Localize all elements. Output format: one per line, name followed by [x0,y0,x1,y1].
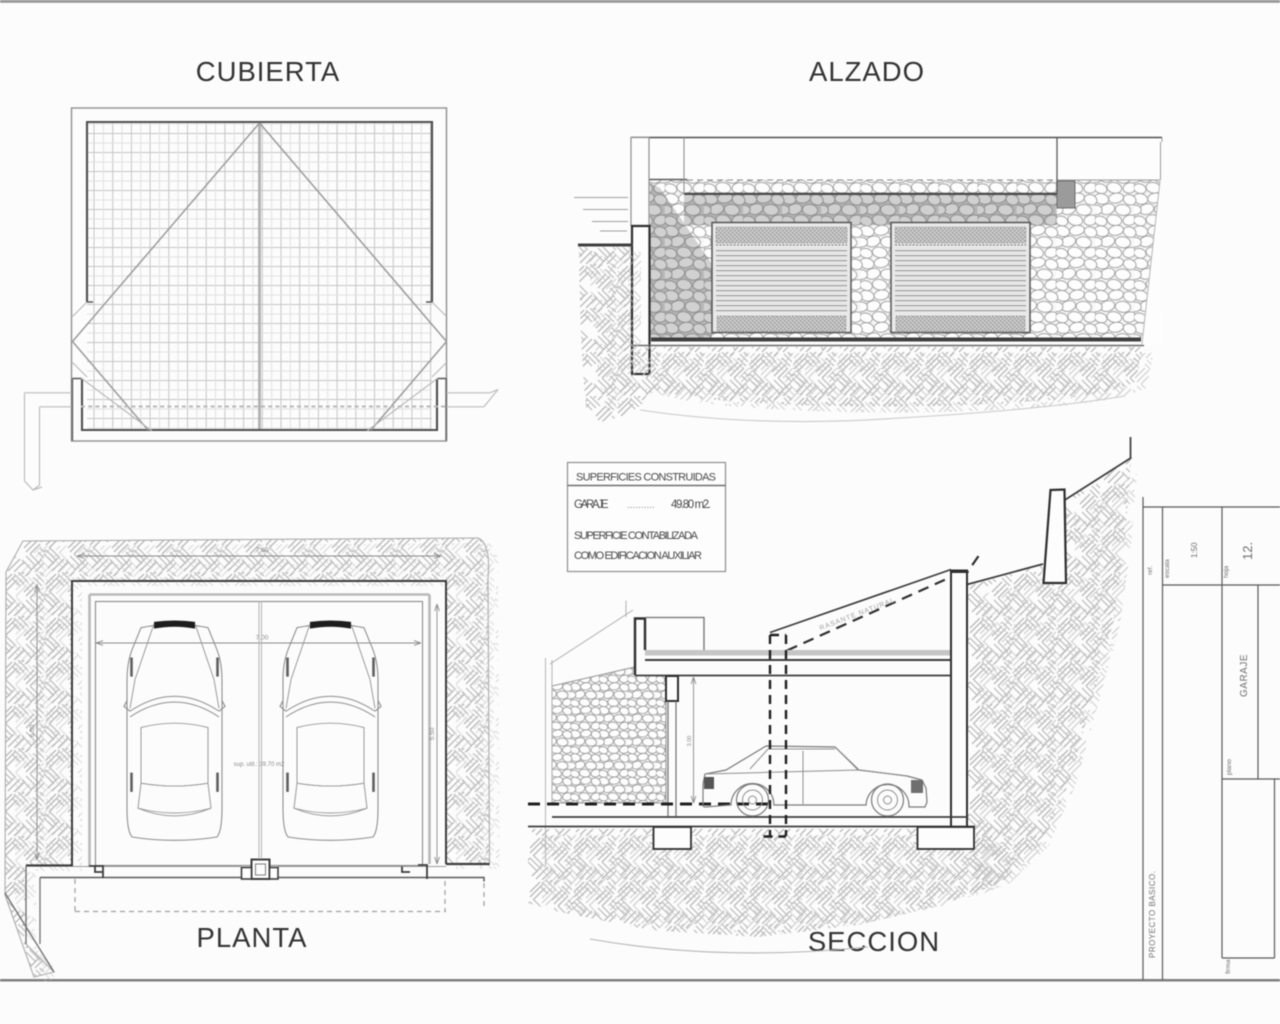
svg-text:49.80 m2.: 49.80 m2. [671,499,711,511]
svg-text:PROYECTO BASICO.: PROYECTO BASICO. [1148,871,1157,958]
svg-text:ref.: ref. [1147,565,1154,575]
svg-text:SUPERFICIE CONTABILIZADA: SUPERFICIE CONTABILIZADA [574,530,699,542]
svg-text:SUPERFICIES CONSTRUIDAS: SUPERFICIES CONSTRUIDAS [576,472,716,484]
svg-text:7.60: 7.60 [256,547,269,554]
svg-text:plano: plano [1226,759,1233,775]
svg-text:..........: .......... [627,500,655,511]
svg-text:5.50: 5.50 [429,727,436,740]
svg-text:SECCION: SECCION [808,926,940,957]
svg-text:firma: firma [1225,959,1232,974]
svg-text:7.00: 7.00 [256,635,269,642]
svg-text:hoja: hoja [1223,565,1230,578]
svg-text:CUBIERTA: CUBIERTA [196,56,341,87]
svg-text:COMO EDIFICACION AUXILIAR: COMO EDIFICACION AUXILIAR [574,550,702,562]
svg-text:GARAJE: GARAJE [574,499,609,511]
svg-text:GARAJE: GARAJE [1239,654,1250,697]
svg-text:escala: escala [1164,559,1171,578]
svg-text:PLANTA: PLANTA [197,922,308,953]
svg-text:3.00: 3.00 [687,736,693,747]
svg-text:1:50: 1:50 [1190,542,1199,558]
svg-text:ALZADO: ALZADO [809,56,925,87]
svg-text:12.: 12. [1240,542,1255,560]
svg-text:6.50: 6.50 [29,724,36,737]
